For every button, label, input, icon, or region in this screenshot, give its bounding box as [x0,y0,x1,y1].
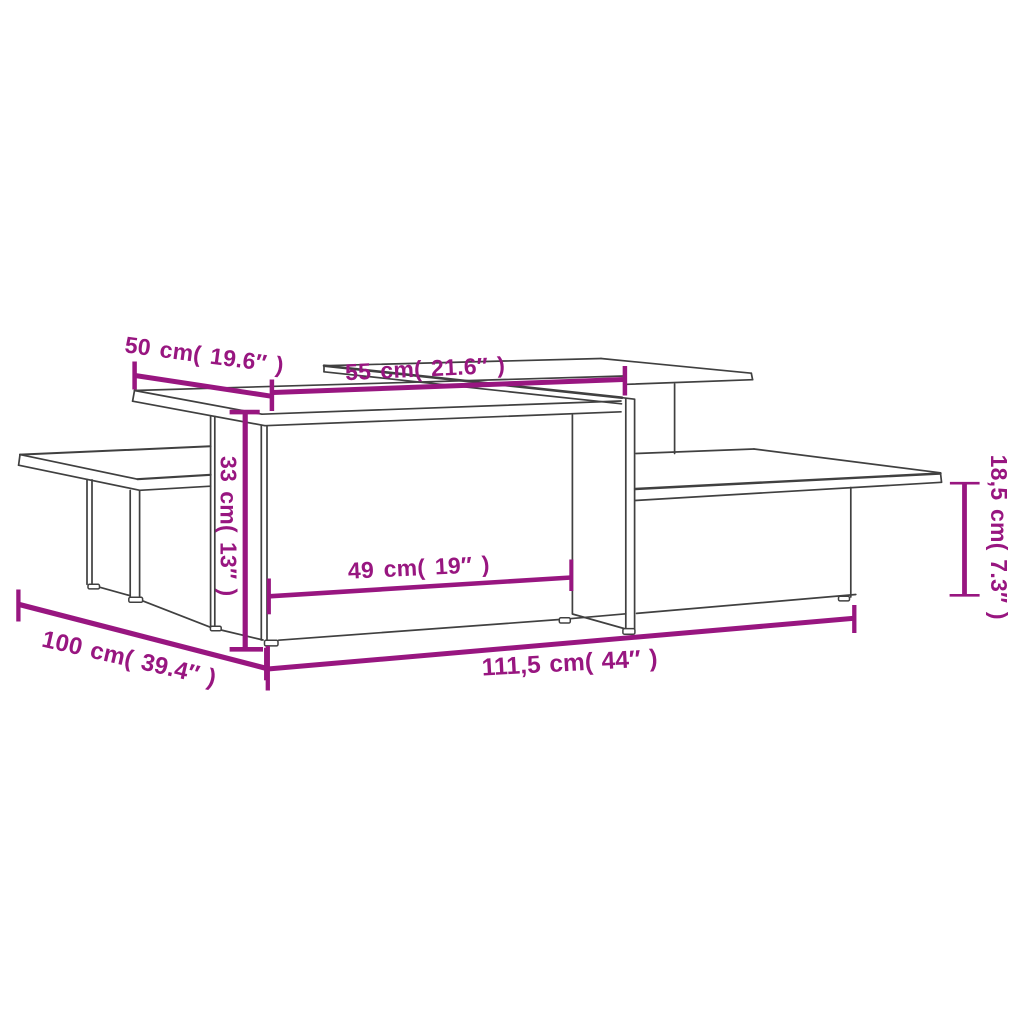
svg-text:18,5 cm( 7.3″ ): 18,5 cm( 7.3″ ) [986,455,1012,620]
svg-text:33 cm( 13″ ): 33 cm( 13″ ) [216,456,242,596]
